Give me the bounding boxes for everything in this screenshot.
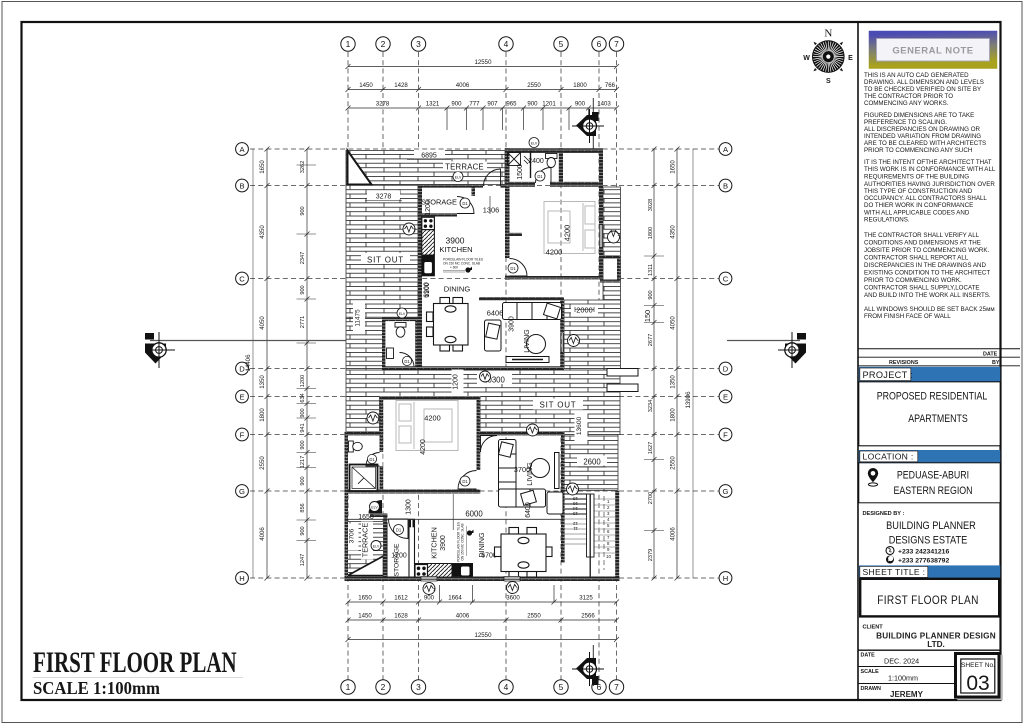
svg-text:1450: 1450: [358, 613, 372, 620]
svg-text:KITCHEN: KITCHEN: [430, 527, 439, 559]
svg-text:856: 856: [300, 503, 306, 512]
svg-text:REQUIREMENTS OF THE BUILDIN: REQUIREMENTS OF THE BUILDING: [864, 174, 969, 181]
svg-text:03: 03: [966, 672, 989, 695]
svg-text:H: H: [239, 574, 244, 583]
svg-text:REGULATIONS.: REGULATIONS.: [864, 217, 910, 224]
svg-text:PREFERENCE TO SCALING.: PREFERENCE TO SCALING.: [864, 119, 947, 126]
svg-text:4350: 4350: [259, 225, 266, 239]
svg-text:15: 15: [573, 496, 578, 501]
svg-text:ON 150 MC CONC. SLAB: ON 150 MC CONC. SLAB: [443, 262, 480, 266]
svg-text:1200: 1200: [300, 375, 306, 387]
svg-text:LOCATION :: LOCATION :: [863, 452, 914, 462]
svg-text:5: 5: [559, 682, 564, 692]
svg-text:1350: 1350: [670, 375, 677, 389]
svg-text:1: 1: [433, 587, 436, 592]
svg-text:1800: 1800: [648, 227, 654, 239]
svg-text:ELV: ELV: [455, 176, 462, 180]
svg-text:4200: 4200: [424, 414, 440, 423]
svg-text:DRAWING. ALL DIMENSION AND: DRAWING. ALL DIMENSION AND LEVELS: [864, 79, 984, 86]
svg-text:12550: 12550: [475, 59, 493, 66]
svg-text:7: 7: [614, 682, 619, 692]
svg-text:3: 3: [416, 682, 421, 692]
svg-text:AND BUILD INTO THE WORK A: AND BUILD INTO THE WORK ALL INSERTS.: [864, 292, 991, 299]
svg-text:1428: 1428: [394, 82, 408, 89]
svg-text:JEREMY: JEREMY: [890, 690, 924, 699]
svg-text:D1: D1: [396, 528, 402, 533]
svg-text:900: 900: [451, 101, 462, 108]
svg-text:N: N: [824, 28, 832, 40]
svg-text:LIVING: LIVING: [525, 462, 534, 486]
svg-text:2379: 2379: [648, 549, 654, 561]
svg-text:4: 4: [517, 586, 520, 591]
svg-text:2400: 2400: [528, 158, 544, 165]
svg-text:3278: 3278: [376, 101, 390, 108]
svg-text:3: 3: [537, 429, 540, 434]
svg-text:3125: 3125: [579, 595, 593, 602]
svg-text:F: F: [723, 430, 728, 439]
svg-text:4: 4: [504, 39, 509, 49]
svg-text:FIRST FLOOR PLAN: FIRST FLOOR PLAN: [33, 645, 237, 679]
svg-text:3900: 3900: [509, 316, 516, 332]
svg-text:900: 900: [300, 440, 306, 449]
svg-text:965: 965: [506, 101, 517, 108]
svg-text:3: 3: [416, 39, 421, 49]
svg-text:2550: 2550: [527, 82, 541, 89]
svg-text:1650: 1650: [358, 514, 374, 521]
svg-text:3900: 3900: [440, 535, 447, 551]
svg-text:DESIGNS ESTATE: DESIGNS ESTATE: [889, 535, 968, 547]
svg-text:6: 6: [597, 39, 602, 49]
svg-text:1500: 1500: [517, 164, 524, 180]
svg-text:LTD.: LTD.: [927, 640, 945, 649]
svg-text:12: 12: [573, 521, 578, 526]
svg-text:1650: 1650: [670, 160, 677, 174]
svg-text:GENERAL NOTE: GENERAL NOTE: [892, 46, 973, 57]
svg-text:PROPOSED RESIDENTIAL: PROPOSED RESIDENTIAL: [877, 391, 988, 403]
svg-text:PRIOR TO COMMENCING WORK.: PRIOR TO COMMENCING WORK.: [864, 277, 962, 284]
svg-text:1628: 1628: [394, 613, 408, 620]
svg-text:B: B: [239, 181, 244, 190]
svg-text:1403: 1403: [597, 101, 611, 108]
svg-text:4: 4: [504, 682, 509, 692]
svg-text:WITH ALL APPLICABLE CODES: WITH ALL APPLICABLE CODES AND: [864, 210, 970, 217]
svg-text:CONTRACTOR SHALL SUPPLY,LOCA: CONTRACTOR SHALL SUPPLY,LOCATE: [864, 285, 980, 292]
svg-text:634: 634: [300, 393, 306, 402]
svg-text:ELV: ELV: [399, 312, 406, 316]
svg-text:7: 7: [614, 39, 619, 49]
svg-text:2347: 2347: [300, 252, 306, 264]
svg-text:3278: 3278: [376, 194, 392, 201]
svg-text:16: 16: [573, 501, 578, 506]
svg-text:TERRACE: TERRACE: [361, 523, 370, 558]
svg-text:3600: 3600: [506, 595, 520, 602]
svg-text:2: 2: [381, 682, 386, 692]
svg-text:ON 150 MC CONC. SLAB: ON 150 MC CONC. SLAB: [461, 523, 465, 560]
svg-text:2: 2: [618, 232, 621, 237]
svg-text:SCALE: SCALE: [861, 669, 880, 675]
svg-text:900: 900: [424, 595, 435, 602]
svg-text:THE CONTRACTOR PRIOR TO: THE CONTRACTOR PRIOR TO: [864, 93, 953, 100]
svg-text:PEDUASE-ABURI: PEDUASE-ABURI: [897, 470, 969, 482]
svg-text:SHEET No.: SHEET No.: [961, 662, 995, 669]
svg-text:1: 1: [346, 682, 351, 692]
svg-text:1627: 1627: [648, 442, 654, 454]
svg-text:KITCHEN: KITCHEN: [439, 245, 472, 254]
svg-text:6400: 6400: [525, 502, 532, 518]
svg-text:E: E: [239, 392, 244, 401]
svg-text:EXISTING CONDITION TO THE: EXISTING CONDITION TO THE ARCHITECT: [864, 270, 990, 277]
svg-text:W: W: [803, 55, 810, 62]
svg-text:3028: 3028: [648, 199, 654, 211]
svg-text:PRIOR TO COMMENCING ANY: PRIOR TO COMMENCING ANY SUCH: [864, 147, 972, 154]
svg-text:1612: 1612: [394, 595, 408, 602]
svg-text:4350: 4350: [670, 225, 677, 239]
svg-text:DATE: DATE: [861, 653, 876, 659]
svg-text:6406: 6406: [487, 309, 503, 318]
svg-text:E: E: [848, 55, 853, 62]
svg-text:DINING: DINING: [444, 285, 471, 294]
svg-text:1: 1: [377, 417, 380, 422]
svg-text:2600: 2600: [583, 458, 601, 467]
svg-text:11475: 11475: [355, 309, 362, 327]
svg-text:6900: 6900: [424, 282, 431, 298]
svg-text:THIS WORK IS IN CONFORMANC: THIS WORK IS IN CONFORMANCE WITH ALL: [864, 166, 996, 173]
svg-text:+233 242341216: +233 242341216: [898, 549, 949, 556]
svg-text:FIRST FLOOR PLAN: FIRST FLOOR PLAN: [877, 594, 979, 607]
svg-text:2550: 2550: [527, 613, 541, 620]
svg-text:4200: 4200: [563, 225, 572, 241]
svg-text:3: 3: [578, 339, 581, 344]
svg-text:900: 900: [300, 206, 306, 215]
svg-text:3234: 3234: [648, 400, 654, 412]
svg-text:IT IS THE INTENT OFTHE AR: IT IS THE INTENT OFTHE ARCHITECT THAT: [864, 159, 992, 166]
svg-text:STORAGE: STORAGE: [394, 543, 401, 577]
svg-text:1650: 1650: [259, 160, 266, 174]
svg-text:FROM FINISH FACE OF WALL: FROM FINISH FACE OF WALL: [864, 313, 951, 320]
svg-text:DO THIER WORK IN CONFORMAN: DO THIER WORK IN CONFORMANCE: [864, 202, 973, 209]
svg-text:REVISIONS: REVISIONS: [889, 360, 919, 366]
svg-text:900: 900: [300, 526, 306, 535]
svg-text:SCALE 1:100mm: SCALE 1:100mm: [33, 678, 160, 698]
svg-text:900: 900: [527, 101, 538, 108]
svg-text:G: G: [239, 487, 245, 496]
svg-text:1200: 1200: [425, 200, 432, 216]
svg-text:E: E: [723, 392, 728, 401]
svg-text:BY: BY: [992, 360, 1000, 366]
svg-text:JOBSITE PRIOR TO COMMENCING: JOBSITE PRIOR TO COMMENCING WORK.: [864, 247, 990, 254]
svg-text:1: 1: [413, 228, 416, 233]
svg-text:BUILDING PLANNER: BUILDING PLANNER: [886, 520, 976, 532]
svg-text:13906: 13906: [685, 391, 692, 409]
svg-text:ELV: ELV: [373, 545, 380, 549]
svg-text:1800: 1800: [670, 408, 677, 422]
svg-text:ELV: ELV: [531, 142, 538, 146]
svg-text:1200: 1200: [453, 374, 460, 390]
svg-text:10: 10: [606, 554, 611, 559]
svg-text:3262: 3262: [300, 161, 306, 173]
svg-text:LIVING: LIVING: [522, 329, 531, 353]
svg-text:2700: 2700: [648, 492, 654, 504]
svg-text:H: H: [723, 574, 728, 583]
svg-text:4006: 4006: [456, 613, 470, 620]
svg-text:G: G: [723, 487, 729, 496]
svg-text:766: 766: [605, 82, 616, 89]
svg-text:OCCUPANCY. ALL CONTRACTORS: OCCUPANCY. ALL CONTRACTORS SHALL: [864, 195, 987, 202]
svg-text:4200: 4200: [420, 439, 427, 455]
svg-text:DEC. 2024: DEC. 2024: [884, 657, 919, 666]
svg-text:1306: 1306: [483, 206, 499, 215]
svg-text:11: 11: [573, 526, 578, 531]
svg-text:2000: 2000: [576, 306, 592, 315]
svg-text:THIS TYPE OF CONSTRUCTION: THIS TYPE OF CONSTRUCTION AND: [864, 188, 973, 195]
svg-text:+233 277638792: +233 277638792: [898, 558, 949, 565]
svg-text:900: 900: [648, 290, 654, 299]
svg-text:CONTRACTOR SHALL REPORT ALL: CONTRACTOR SHALL REPORT ALL: [864, 255, 969, 262]
svg-text:5: 5: [559, 39, 564, 49]
svg-text:1217: 1217: [300, 456, 306, 468]
svg-text:900: 900: [575, 101, 586, 108]
svg-text:3: 3: [577, 488, 580, 493]
svg-text:CONDITIONS AND DIMENSIONS A: CONDITIONS AND DIMENSIONS AT THE: [864, 240, 981, 247]
svg-text:SIT OUT: SIT OUT: [539, 401, 576, 410]
svg-text:4006: 4006: [259, 527, 266, 541]
svg-text:C: C: [239, 274, 245, 283]
svg-text:2771: 2771: [300, 316, 306, 328]
svg-text:APARTMENTS: APARTMENTS: [908, 413, 968, 425]
svg-text:1311: 1311: [648, 264, 654, 276]
svg-text:ALL DISCREPANCIES ON DRAW: ALL DISCREPANCIES ON DRAWING OR: [864, 126, 981, 133]
svg-text:DISCREPANCIES IN THE DRAWIN: DISCREPANCIES IN THE DRAWINGS AND: [864, 262, 986, 269]
svg-text:1450: 1450: [359, 82, 373, 89]
svg-text:1200: 1200: [391, 553, 407, 560]
svg-text:900: 900: [300, 408, 306, 417]
svg-text:1300: 1300: [406, 499, 413, 515]
svg-text:6895: 6895: [421, 153, 437, 160]
svg-text:900: 900: [300, 476, 306, 485]
svg-text:THIS IS AN AUTO CAD GENER: THIS IS AN AUTO CAD GENERATED: [864, 72, 969, 79]
svg-text:2677: 2677: [648, 334, 654, 346]
svg-text:777: 777: [469, 101, 480, 108]
svg-text:14406: 14406: [245, 354, 252, 372]
svg-text:SIT OUT: SIT OUT: [367, 256, 404, 265]
svg-text:D: D: [723, 364, 729, 373]
svg-text:6000: 6000: [465, 510, 483, 519]
svg-text:D1: D1: [369, 457, 375, 462]
svg-text:3706: 3706: [349, 528, 356, 543]
svg-text:2550: 2550: [259, 456, 266, 470]
svg-text:D1: D1: [537, 174, 543, 179]
svg-text:907: 907: [487, 101, 498, 108]
svg-text:4050: 4050: [259, 316, 266, 330]
svg-text:AUTHORITIES HAVING JURISDICT: AUTHORITIES HAVING JURISDICTION OVER: [864, 181, 995, 188]
svg-text:TERRACE: TERRACE: [445, 163, 484, 172]
svg-text:DESIGNED BY :: DESIGNED BY :: [863, 511, 905, 517]
svg-text:1664: 1664: [448, 595, 462, 602]
svg-text:14: 14: [573, 506, 578, 511]
svg-text:2: 2: [381, 39, 386, 49]
svg-text:1350: 1350: [259, 375, 266, 389]
svg-text:1800: 1800: [259, 408, 266, 422]
svg-text:D1: D1: [510, 266, 516, 271]
svg-text:2550: 2550: [670, 456, 677, 470]
svg-text:12550: 12550: [475, 632, 493, 639]
svg-text:1:100mm: 1:100mm: [888, 674, 918, 683]
svg-text:ALL WINDOWS SHOULD BE SET: ALL WINDOWS SHOULD BE SET BACK 25мм: [864, 306, 995, 313]
svg-text:THE CONTRACTOR SHALL VERIFY: THE CONTRACTOR SHALL VERIFY ALL: [864, 232, 980, 239]
svg-text:D1: D1: [462, 479, 468, 484]
svg-text:ELV: ELV: [371, 506, 378, 510]
svg-text:4006: 4006: [670, 527, 677, 541]
svg-text:+ 600: + 600: [450, 266, 458, 270]
svg-text:PROJECT :: PROJECT :: [863, 370, 914, 380]
svg-text:SHEET TITLE :: SHEET TITLE :: [863, 567, 926, 577]
svg-text:150: 150: [643, 310, 652, 322]
svg-text:1800: 1800: [573, 82, 587, 89]
svg-text:D1: D1: [462, 201, 468, 206]
svg-text:3900: 3900: [446, 236, 465, 246]
svg-text:4050: 4050: [670, 316, 677, 330]
svg-text:1247: 1247: [300, 554, 306, 566]
svg-text:1650: 1650: [358, 595, 372, 602]
svg-text:1: 1: [346, 39, 351, 49]
svg-text:4200: 4200: [546, 248, 562, 257]
svg-text:TO BE CHECKED VERIFIED ON S: TO BE CHECKED VERIFIED ON SITE BY: [864, 86, 981, 93]
svg-text:ARE TO BE CLEARED WITH AR: ARE TO BE CLEARED WITH ARCHITECTS: [864, 140, 986, 147]
svg-text:13600: 13600: [576, 417, 583, 436]
svg-text:F: F: [240, 430, 245, 439]
svg-text:C: C: [723, 274, 729, 283]
svg-text:D1: D1: [404, 359, 410, 364]
svg-text:1201: 1201: [542, 101, 556, 108]
svg-text:2566: 2566: [581, 613, 595, 620]
svg-text:DATE: DATE: [983, 352, 998, 358]
svg-text:S: S: [826, 78, 831, 85]
svg-text:941: 941: [300, 423, 306, 432]
svg-text:EASTERN REGION: EASTERN REGION: [893, 485, 972, 497]
svg-text:INTENDED VARIATION FROM DR: INTENDED VARIATION FROM DRAWING: [864, 133, 981, 140]
svg-text:13: 13: [573, 511, 578, 516]
svg-text:900: 900: [300, 285, 306, 294]
svg-text:FIGURED DIMENSIONS ARE TO: FIGURED DIMENSIONS ARE TO TAKE: [864, 112, 974, 119]
svg-text:B: B: [723, 181, 728, 190]
svg-text:CLIENT: CLIENT: [863, 625, 884, 631]
svg-text:COMMENCING ANY WORKS.: COMMENCING ANY WORKS.: [864, 100, 949, 107]
svg-text:1321: 1321: [426, 101, 440, 108]
svg-text:DRAWN: DRAWN: [861, 686, 881, 692]
svg-text:4006: 4006: [456, 82, 470, 89]
